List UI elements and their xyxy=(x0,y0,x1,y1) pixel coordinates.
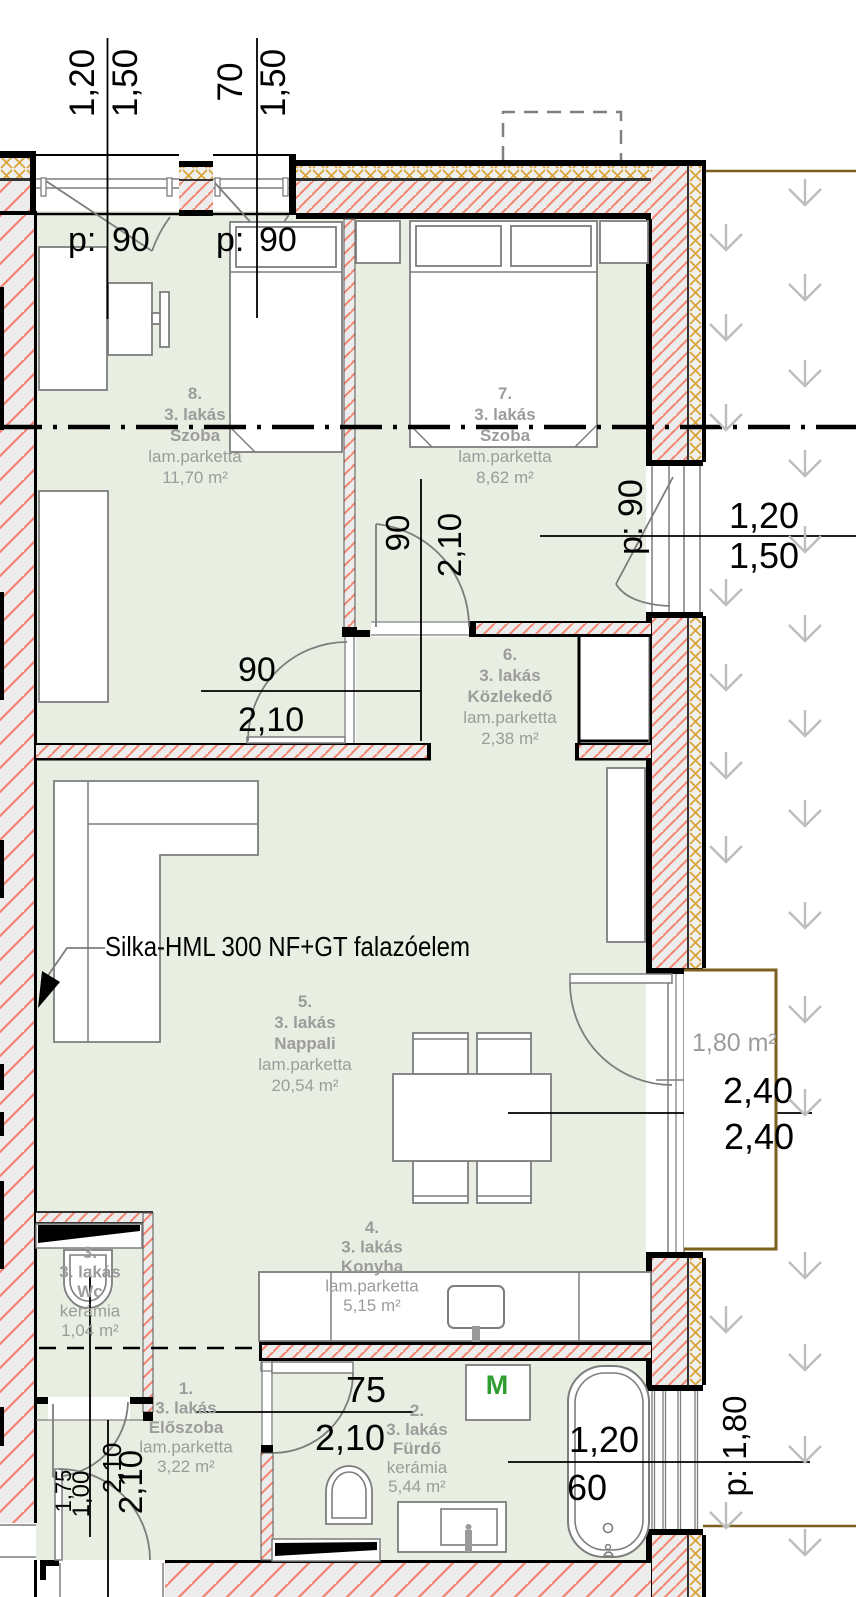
svg-text:4.: 4. xyxy=(365,1218,379,1237)
svg-text:Nappali: Nappali xyxy=(274,1034,335,1053)
svg-text:60: 60 xyxy=(567,1467,607,1508)
svg-text:3,22 m²: 3,22 m² xyxy=(157,1457,215,1476)
svg-text:2,40: 2,40 xyxy=(724,1116,794,1157)
svg-text:70: 70 xyxy=(211,63,250,102)
svg-text:p: 90: p: 90 xyxy=(612,479,650,555)
svg-text:90: 90 xyxy=(238,651,276,689)
svg-text:3. lakás: 3. lakás xyxy=(474,405,535,424)
svg-text:2,10: 2,10 xyxy=(112,1450,149,1514)
svg-text:Wc: Wc xyxy=(77,1282,103,1301)
svg-text:p:: p: xyxy=(68,221,96,259)
svg-text:2.: 2. xyxy=(410,1401,424,1420)
svg-text:5.: 5. xyxy=(298,992,312,1011)
svg-text:2,10: 2,10 xyxy=(238,701,304,739)
svg-text:1.: 1. xyxy=(179,1379,193,1398)
svg-text:lam.parketta: lam.parketta xyxy=(458,447,552,466)
svg-text:3. lakás: 3. lakás xyxy=(59,1263,120,1282)
svg-text:lam.parketta: lam.parketta xyxy=(325,1277,419,1296)
svg-text:kerámia: kerámia xyxy=(60,1302,121,1321)
svg-text:2,10: 2,10 xyxy=(431,513,468,577)
svg-text:11,70 m²: 11,70 m² xyxy=(162,468,228,487)
svg-text:3. lakás: 3. lakás xyxy=(274,1013,335,1032)
svg-text:1,80 m²: 1,80 m² xyxy=(692,1029,777,1057)
svg-text:Közlekedő: Közlekedő xyxy=(467,687,552,706)
svg-text:lam.parketta: lam.parketta xyxy=(463,708,557,727)
svg-text:Fürdő: Fürdő xyxy=(393,1439,441,1458)
svg-text:1,50: 1,50 xyxy=(254,49,293,117)
svg-text:lam.parketta: lam.parketta xyxy=(139,1438,233,1457)
svg-text:7.: 7. xyxy=(498,384,512,403)
svg-text:3. lakás: 3. lakás xyxy=(479,666,540,685)
svg-text:1,20: 1,20 xyxy=(63,49,102,117)
svg-text:lam.parketta: lam.parketta xyxy=(258,1055,352,1074)
svg-text:p: 1,80: p: 1,80 xyxy=(716,1396,753,1497)
svg-text:1,20: 1,20 xyxy=(729,495,799,536)
svg-text:90: 90 xyxy=(112,221,150,259)
svg-text:3. lakás: 3. lakás xyxy=(155,1399,216,1418)
svg-text:2,38 m²: 2,38 m² xyxy=(481,729,539,748)
svg-text:1,20: 1,20 xyxy=(569,1419,639,1460)
svg-text:90: 90 xyxy=(379,515,416,552)
svg-text:2,40: 2,40 xyxy=(723,1070,793,1111)
svg-text:3. lakás: 3. lakás xyxy=(341,1238,402,1257)
svg-text:3.: 3. xyxy=(83,1243,97,1262)
svg-text:lam.parketta: lam.parketta xyxy=(148,447,242,466)
svg-text:kerámia: kerámia xyxy=(387,1458,448,1477)
svg-text:6.: 6. xyxy=(503,645,517,664)
svg-text:1,50: 1,50 xyxy=(106,49,145,117)
svg-text:75: 75 xyxy=(346,1369,386,1410)
svg-text:5,44 m²: 5,44 m² xyxy=(388,1477,446,1496)
svg-text:5,15 m²: 5,15 m² xyxy=(343,1296,401,1315)
svg-text:Szoba: Szoba xyxy=(480,426,531,445)
svg-text:2,10: 2,10 xyxy=(315,1417,385,1458)
svg-text:1,04 m²: 1,04 m² xyxy=(61,1321,119,1340)
svg-text:8,62 m²: 8,62 m² xyxy=(476,468,534,487)
svg-text:3. lakás: 3. lakás xyxy=(386,1420,447,1439)
svg-text:1,00: 1,00 xyxy=(68,1471,95,1518)
svg-text:8.: 8. xyxy=(188,384,202,403)
svg-text:20,54 m²: 20,54 m² xyxy=(271,1076,338,1095)
svg-text:M: M xyxy=(486,1370,509,1400)
svg-text:Szoba: Szoba xyxy=(170,426,221,445)
svg-text:Konyha: Konyha xyxy=(341,1257,404,1276)
svg-text:1,50: 1,50 xyxy=(729,535,799,576)
svg-text:p:: p: xyxy=(216,221,244,259)
svg-text:Silka-HML 300 NF+GT falazóelem: Silka-HML 300 NF+GT falazóelem xyxy=(105,931,470,962)
svg-text:3. lakás: 3. lakás xyxy=(164,405,225,424)
svg-text:90: 90 xyxy=(259,221,297,259)
svg-text:Előszoba: Előszoba xyxy=(149,1418,224,1437)
